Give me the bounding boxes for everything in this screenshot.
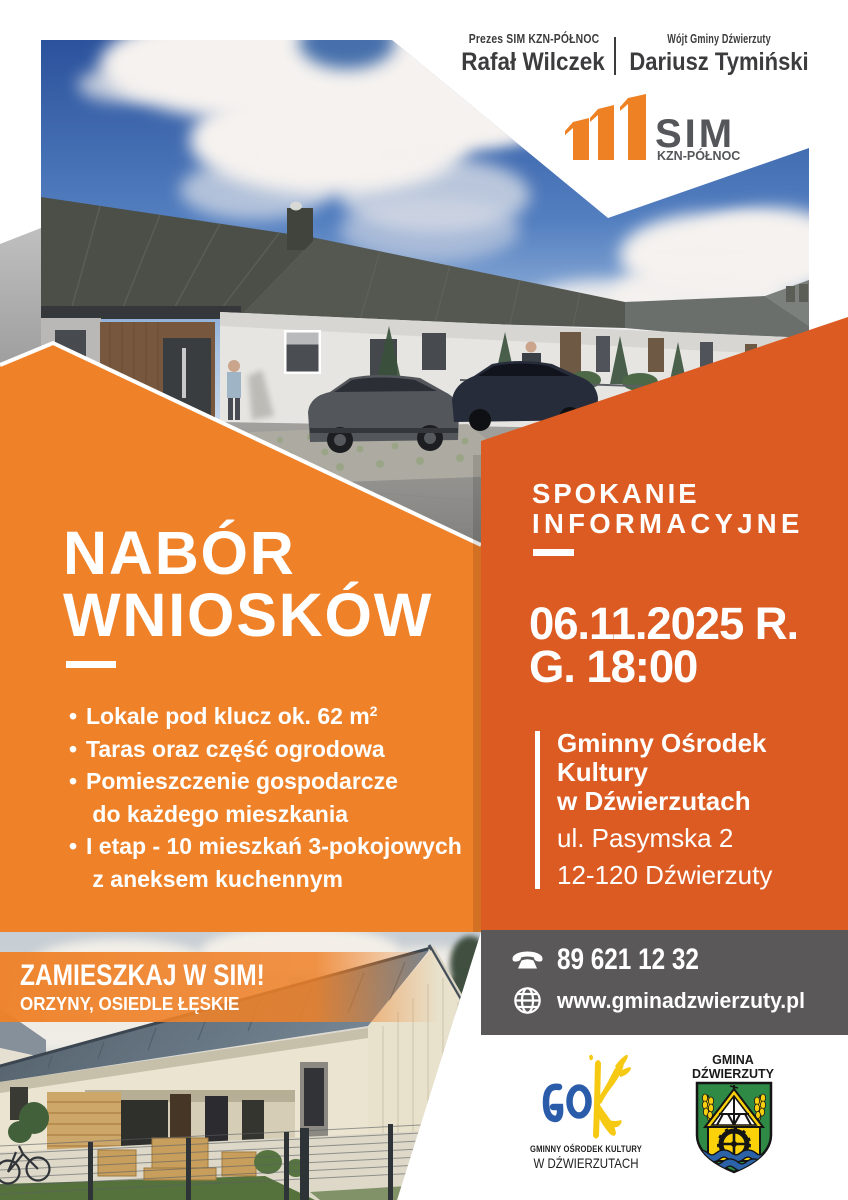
svg-text:KZN-PÓŁNOC: KZN-PÓŁNOC bbox=[657, 148, 740, 163]
